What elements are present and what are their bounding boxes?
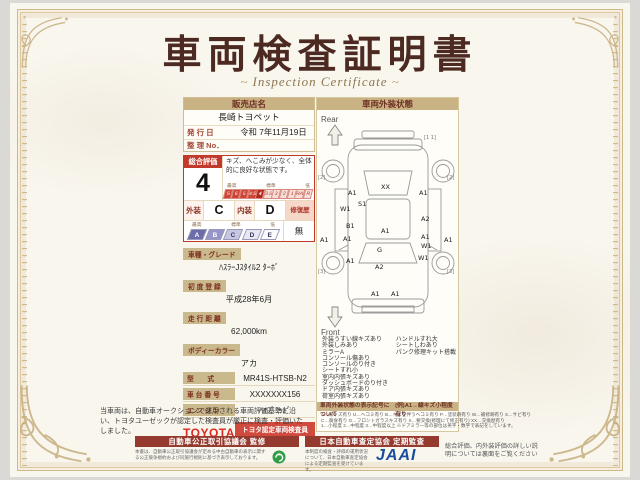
field-model-grade: 車種・グレード ﾊｽﾗｰJｽﾀｲﾙ2 ﾀｰﾎﾞ (183, 244, 315, 274)
field-value: アカ (183, 358, 315, 370)
field-model-code: 型 式 MR41S-HTSB-N2 (183, 371, 315, 386)
issue-date-label: 発 行 日 (184, 126, 233, 139)
damage-code: A1 (381, 227, 390, 235)
overall-rating-box: 総合評価 4 キズ、へこみが少なく、全体的に良好な状態です。 最高 標準 低 S… (183, 155, 315, 242)
damage-code: W1 (340, 205, 351, 213)
damage-code: A1 (320, 236, 329, 244)
overall-rating-value: 4 (184, 168, 222, 200)
exterior-condition-header: 車両外装状態 (317, 98, 458, 110)
condition-note: 荷室内張キズあり (322, 394, 396, 400)
condition-notes-col2: ハンドルすれ大シートしわありパンク修理キット搭載 (396, 337, 456, 400)
damage-code: S1 (358, 200, 366, 208)
damage-code: A1 (421, 233, 430, 241)
exterior-condition-panel: 車両外装状態 (316, 97, 459, 432)
damage-code: A1 (348, 189, 357, 197)
field-value: ﾊｽﾗｰJｽﾀｲﾙ2 ﾀｰﾎﾞ (183, 262, 315, 274)
ref-no-label: 整 理 No． (184, 140, 233, 151)
rating-comment: キズ、へこみが少なく、全体的に良好な状態です。 (223, 156, 314, 183)
field-value: XXXXXXX156 (235, 390, 315, 399)
rear-label: Rear (321, 115, 339, 124)
overall-rating-header: 総合評価 (184, 156, 222, 168)
wheel-mark: [3] (447, 269, 454, 275)
legend-title: 車両外装状態の表示記号について (320, 402, 395, 411)
scale-label-high: 最高 (192, 222, 202, 228)
exterior-label: 外装 (184, 201, 204, 220)
damage-code: W1 (418, 254, 429, 262)
exterior-value: C (204, 201, 235, 220)
damage-code: A1 (419, 189, 428, 197)
field-body-color: ボディーカラー アカ (183, 340, 315, 370)
scale-label-mid: 標準 (231, 222, 241, 228)
field-label: 型 式 (183, 372, 235, 384)
fair-trade-council-bar: 自動車公正取引協議会 監修 (135, 436, 299, 447)
field-label: 車種・グレード (183, 248, 241, 260)
grade-scale-cell: C (223, 229, 244, 240)
vehicle-info-column: 販売店名 長崎トヨペット 発 行 日 令和 7年11月19日 整 理 No． 総… (183, 97, 315, 448)
front-arrow-icon (328, 307, 342, 327)
field-label: 初 度 登 録 (183, 280, 226, 292)
car-diagram: Rear Front XXA1A1W1S1A2B1A1A1A1A1A1W1GA1… (318, 111, 458, 337)
rating-scale: S654.543.5321RAR (223, 189, 314, 200)
fair-trade-emblem-icon (272, 450, 286, 464)
field-value: MR41S-HTSB-N2 (235, 374, 315, 383)
field-label: 車 台 番 号 (183, 388, 235, 400)
legend-line: 1…小程度 2…中程度 3…中程度以上 ※ドアミラー等の部位は英字・数字で表記を… (321, 423, 456, 429)
legend-lines: A…線キズ有り U…ヘコミ有り B…キズを伴うヘコミ有り P…塗装跡有り W…補… (317, 411, 458, 431)
legend-line: A…線キズ有り U…ヘコミ有り B…キズを伴うヘコミ有り P…塗装跡有り W…補… (321, 412, 456, 418)
field-label: 走 行 距 離 (183, 312, 226, 324)
exterior-condition-column: 車両外装状態 (316, 97, 459, 432)
damage-code: A1 (371, 290, 380, 298)
damage-code: G (377, 246, 382, 254)
wheel-marks: [1 1][2][2][3][3] (318, 135, 454, 275)
damage-code: W1 (421, 242, 432, 250)
condition-notes-col1: 外装うすい線キズあり外装しみありミラーAコンソール傷ありコンソールのり付きシート… (322, 337, 396, 400)
damage-code: A1 (346, 257, 355, 265)
damage-code: A1 (391, 290, 400, 298)
page-title: 車両検査証明書 (0, 24, 640, 80)
damage-code: A1 (444, 236, 453, 244)
interior-value: D (255, 201, 286, 220)
interior-label: 内装 (235, 201, 255, 220)
damage-code: B1 (346, 222, 355, 230)
repair-history-label: 修復歴 (286, 201, 314, 220)
jaai-logo: JAAI (376, 447, 416, 465)
page-subtitle: Inspection Certificate (0, 74, 640, 90)
condition-notes: 外装うすい線キズあり外装しみありミラーAコンソール傷ありコンソールのり付きシート… (317, 337, 458, 401)
damage-code: A2 (375, 263, 384, 271)
field-value: 平成28年6月 (183, 294, 315, 306)
wheel-mark: [2] (318, 175, 325, 181)
scale-label-low: 低 (270, 222, 275, 228)
damage-code: A2 (421, 215, 430, 223)
rear-arrow-icon (328, 125, 342, 145)
field-label: ボディーカラー (183, 344, 240, 356)
grade-scale-cell: E (260, 229, 281, 240)
dealer-name: 長崎トヨペット (184, 110, 314, 125)
front-label: Front (321, 328, 340, 337)
assessor-note: 本制度の検査・評価の運用状況について、日本自動車査定協会による定期監査を受けてい… (305, 449, 371, 472)
damage-codes: XXA1A1W1S1A2B1A1A1A1A1A1W1GA1W1A2A1A1 (320, 183, 453, 298)
see-reverse-note: 総合評価、内外装評価の詳しい説明については裏面をご覧ください (445, 443, 542, 460)
wheel-mark: [3] (318, 269, 325, 275)
legend-example: (例)A1→線キズ小程度有り (395, 402, 455, 411)
repair-history-value: 無 (284, 221, 314, 241)
grade-scale-cell: D (241, 229, 262, 240)
field-first-registration: 初 度 登 録 平成28年6月 (183, 276, 315, 306)
field-mileage: 走 行 距 離 62,000km (183, 308, 315, 338)
wheel-mark: [1 1] (424, 135, 436, 141)
dealer-header: 販売店名 (184, 98, 314, 110)
field-chassis-number: 車 台 番 号 XXXXXXX156 (183, 387, 315, 402)
field-value: 62,000km (183, 326, 315, 338)
damage-code: XX (381, 183, 390, 191)
condition-note: パンク修理キット搭載 (396, 350, 456, 356)
fair-trade-note: 本書は、自動車公正取引協議会が定める中古自動車の表示に関する公正競争規約および同… (135, 449, 267, 461)
wheel-mark: [2] (447, 175, 454, 181)
assessor-association-bar: 日本自動車査定協会 定期監査 (305, 436, 439, 447)
damage-code: A1 (343, 235, 352, 243)
corner-flourish-icon (534, 382, 622, 470)
issue-date-value: 令和 7年11月19日 (233, 126, 314, 139)
rating-scale-cell: R (302, 189, 313, 199)
grade-scale: 最高 標準 低 ABCDE (184, 221, 284, 241)
corner-flourish-icon (18, 382, 106, 470)
dealer-box: 販売店名 長崎トヨペット 発 行 日 令和 7年11月19日 整 理 No． (183, 97, 315, 152)
disclaimer-text: 当車両は、自動車オークションで運用される車両評価基準に沿い、トヨタユーゼックが認… (100, 407, 308, 437)
